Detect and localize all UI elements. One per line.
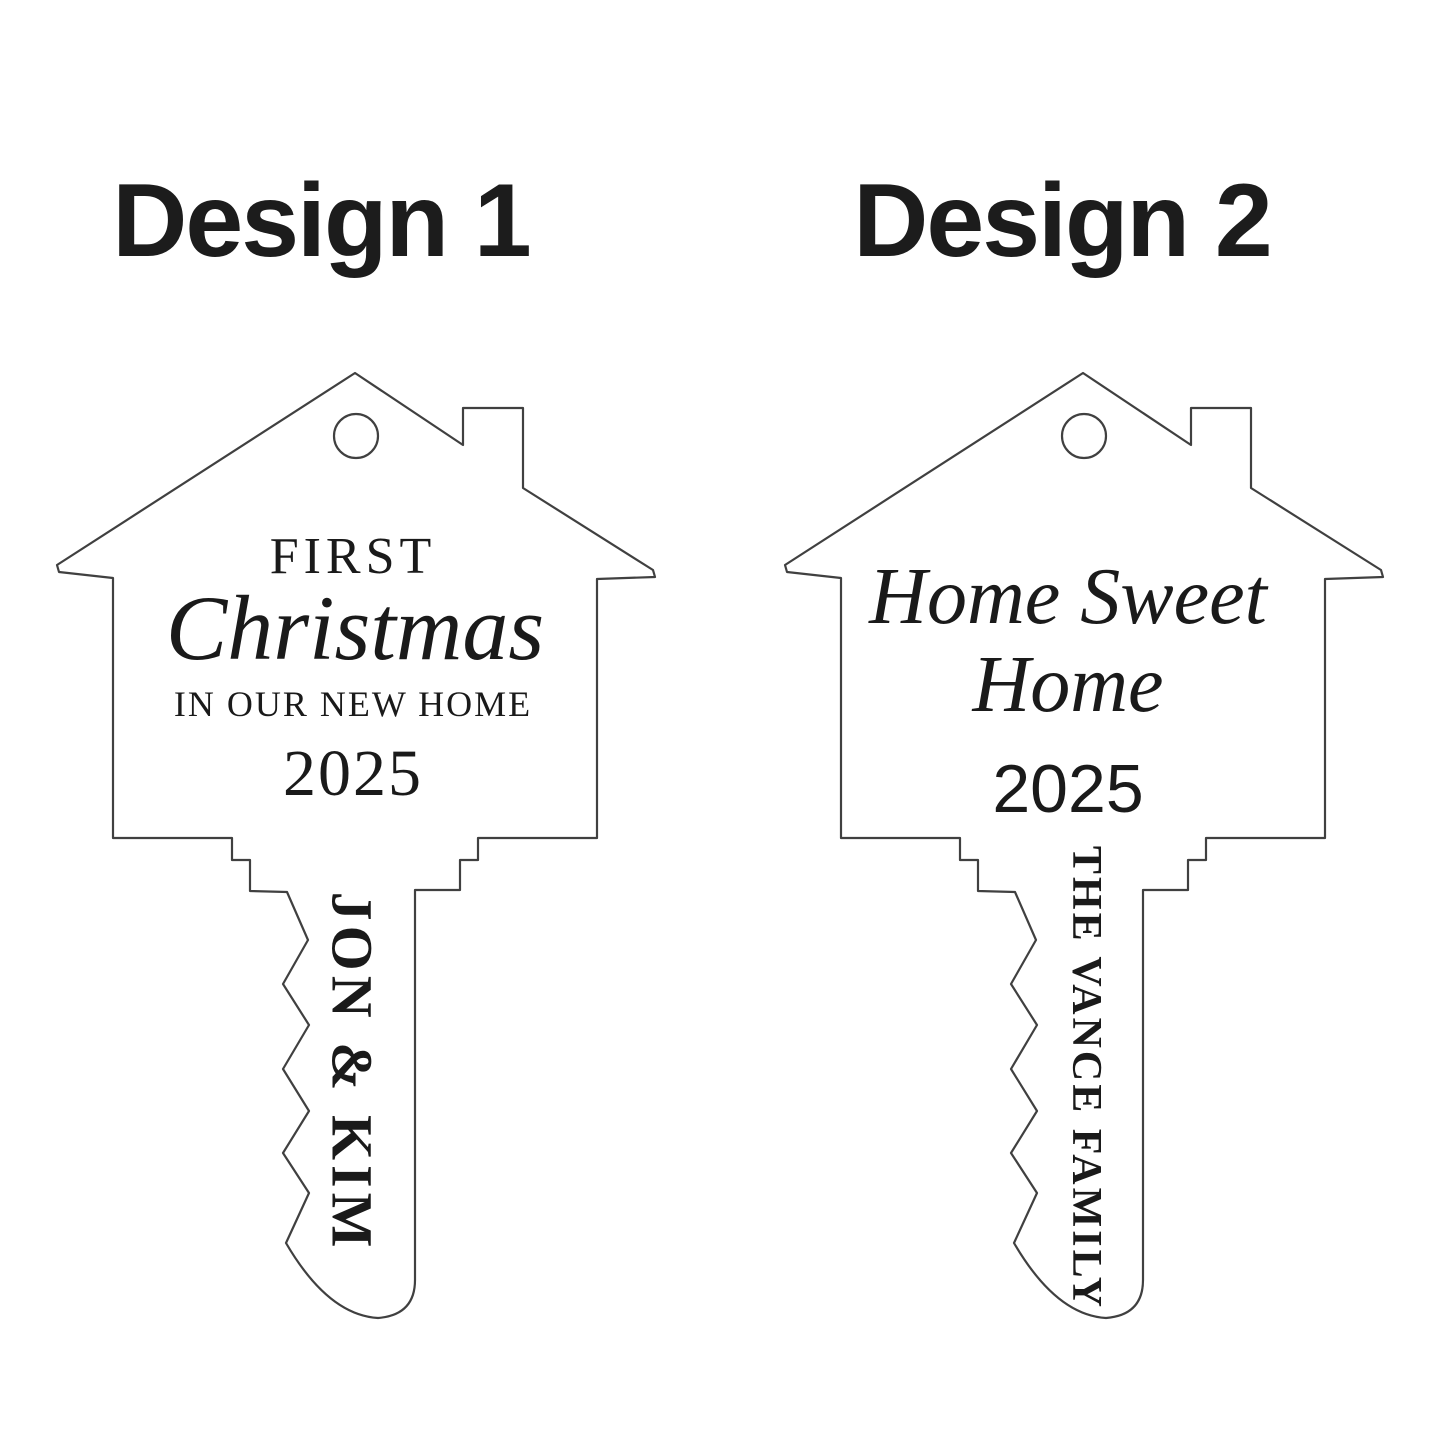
design-1-title: Design 1 — [112, 162, 529, 281]
design-1-year: 2025 — [283, 736, 423, 812]
design-2-title: Design 2 — [853, 162, 1270, 281]
design-2-shaft-family-name: THE VANCE FAMILY — [1062, 846, 1110, 1310]
design-1-line-in-our-new-home: IN OUR NEW HOME — [174, 683, 532, 725]
design-2-year: 2025 — [992, 750, 1143, 828]
design-1-line-christmas: Christmas — [166, 575, 544, 681]
design-2-line-home-sweet: Home Sweet — [869, 552, 1267, 643]
hang-hole — [334, 414, 378, 458]
hang-hole — [1062, 414, 1106, 458]
design-1-shaft-names: JON & KIM — [319, 892, 386, 1253]
product-proof-canvas: Design 1 Design 2 FIRST Christmas IN OUR… — [0, 0, 1445, 1445]
design-2-line-home: Home — [972, 640, 1163, 731]
